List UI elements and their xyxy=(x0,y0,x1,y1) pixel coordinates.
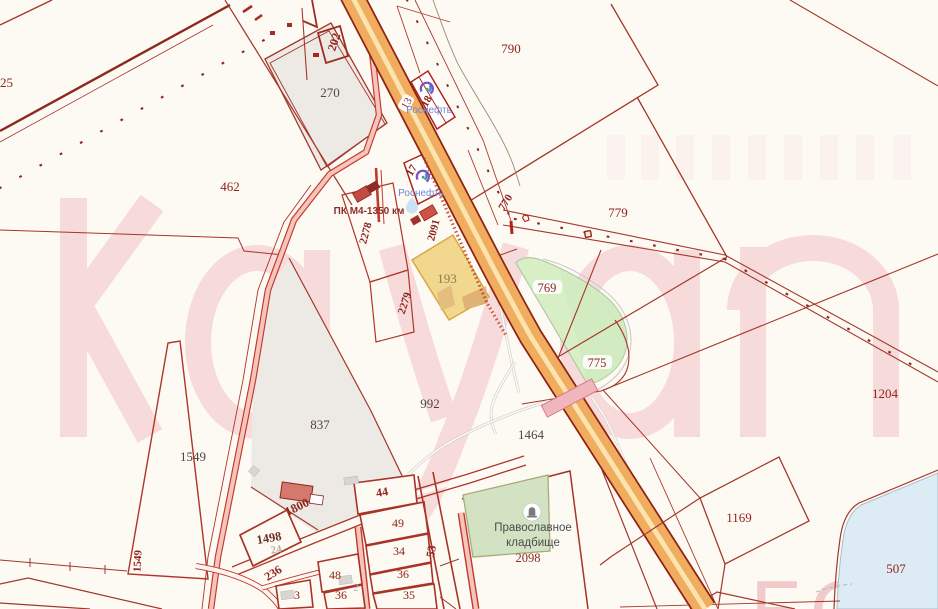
svg-text:270: 270 xyxy=(320,85,340,100)
svg-text:25: 25 xyxy=(0,75,13,90)
svg-text:Роснефть: Роснефть xyxy=(398,187,444,199)
svg-text:992: 992 xyxy=(420,396,440,411)
svg-text:36: 36 xyxy=(335,588,347,602)
svg-text:462: 462 xyxy=(220,179,240,194)
svg-text:790: 790 xyxy=(501,41,521,56)
svg-text:3: 3 xyxy=(294,588,300,602)
svg-text:48: 48 xyxy=(329,568,341,582)
svg-text:775: 775 xyxy=(588,356,607,370)
svg-text:1549: 1549 xyxy=(131,549,144,572)
svg-text:193: 193 xyxy=(437,271,457,286)
svg-text:1169: 1169 xyxy=(726,510,752,525)
svg-text:769: 769 xyxy=(538,281,557,295)
svg-text:507: 507 xyxy=(886,561,906,576)
svg-text:837: 837 xyxy=(310,417,330,432)
svg-text:34: 34 xyxy=(393,544,405,558)
svg-text:779: 779 xyxy=(608,205,628,220)
svg-text:44: 44 xyxy=(375,484,389,500)
svg-text:53: 53 xyxy=(423,544,439,558)
svg-text:Православное: Православное xyxy=(494,522,572,534)
svg-text:1204: 1204 xyxy=(872,386,899,401)
svg-text:1464: 1464 xyxy=(518,427,545,442)
svg-text:2: 2 xyxy=(353,582,359,594)
svg-text:1549: 1549 xyxy=(180,449,206,464)
svg-text:2098: 2098 xyxy=(516,551,541,565)
svg-text:ПК М4-1350 км: ПК М4-1350 км xyxy=(334,206,405,217)
svg-text:35: 35 xyxy=(403,588,415,602)
svg-text:кладбище: кладбище xyxy=(506,537,560,549)
svg-text:36: 36 xyxy=(397,567,409,581)
svg-text:49: 49 xyxy=(392,516,404,530)
